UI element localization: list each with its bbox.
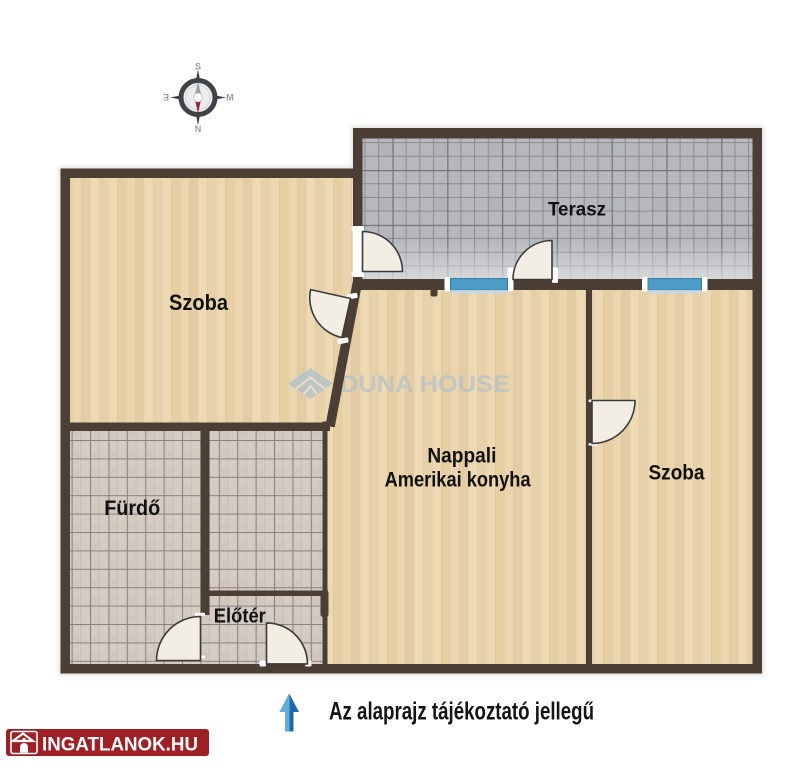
svg-text:Szoba: Szoba [649, 461, 705, 484]
svg-text:INGATLANOK.HU: INGATLANOK.HU [42, 735, 198, 756]
svg-text:M: M [226, 93, 234, 103]
svg-text:Szoba: Szoba [169, 290, 229, 315]
svg-text:S: S [195, 62, 201, 72]
svg-text:N: N [195, 124, 202, 134]
svg-text:DUNA HOUSE: DUNA HOUSE [340, 371, 510, 398]
svg-text:Terasz: Terasz [548, 199, 606, 220]
svg-text:E: E [163, 93, 169, 103]
svg-text:Előtér: Előtér [214, 605, 266, 627]
svg-text:Fürdő: Fürdő [104, 497, 160, 520]
svg-text:Amerikai konyha: Amerikai konyha [385, 468, 531, 491]
svg-text:Nappali: Nappali [427, 444, 496, 467]
svg-text:Az alaprajz tájékoztató jelleg: Az alaprajz tájékoztató jellegű [329, 698, 594, 726]
